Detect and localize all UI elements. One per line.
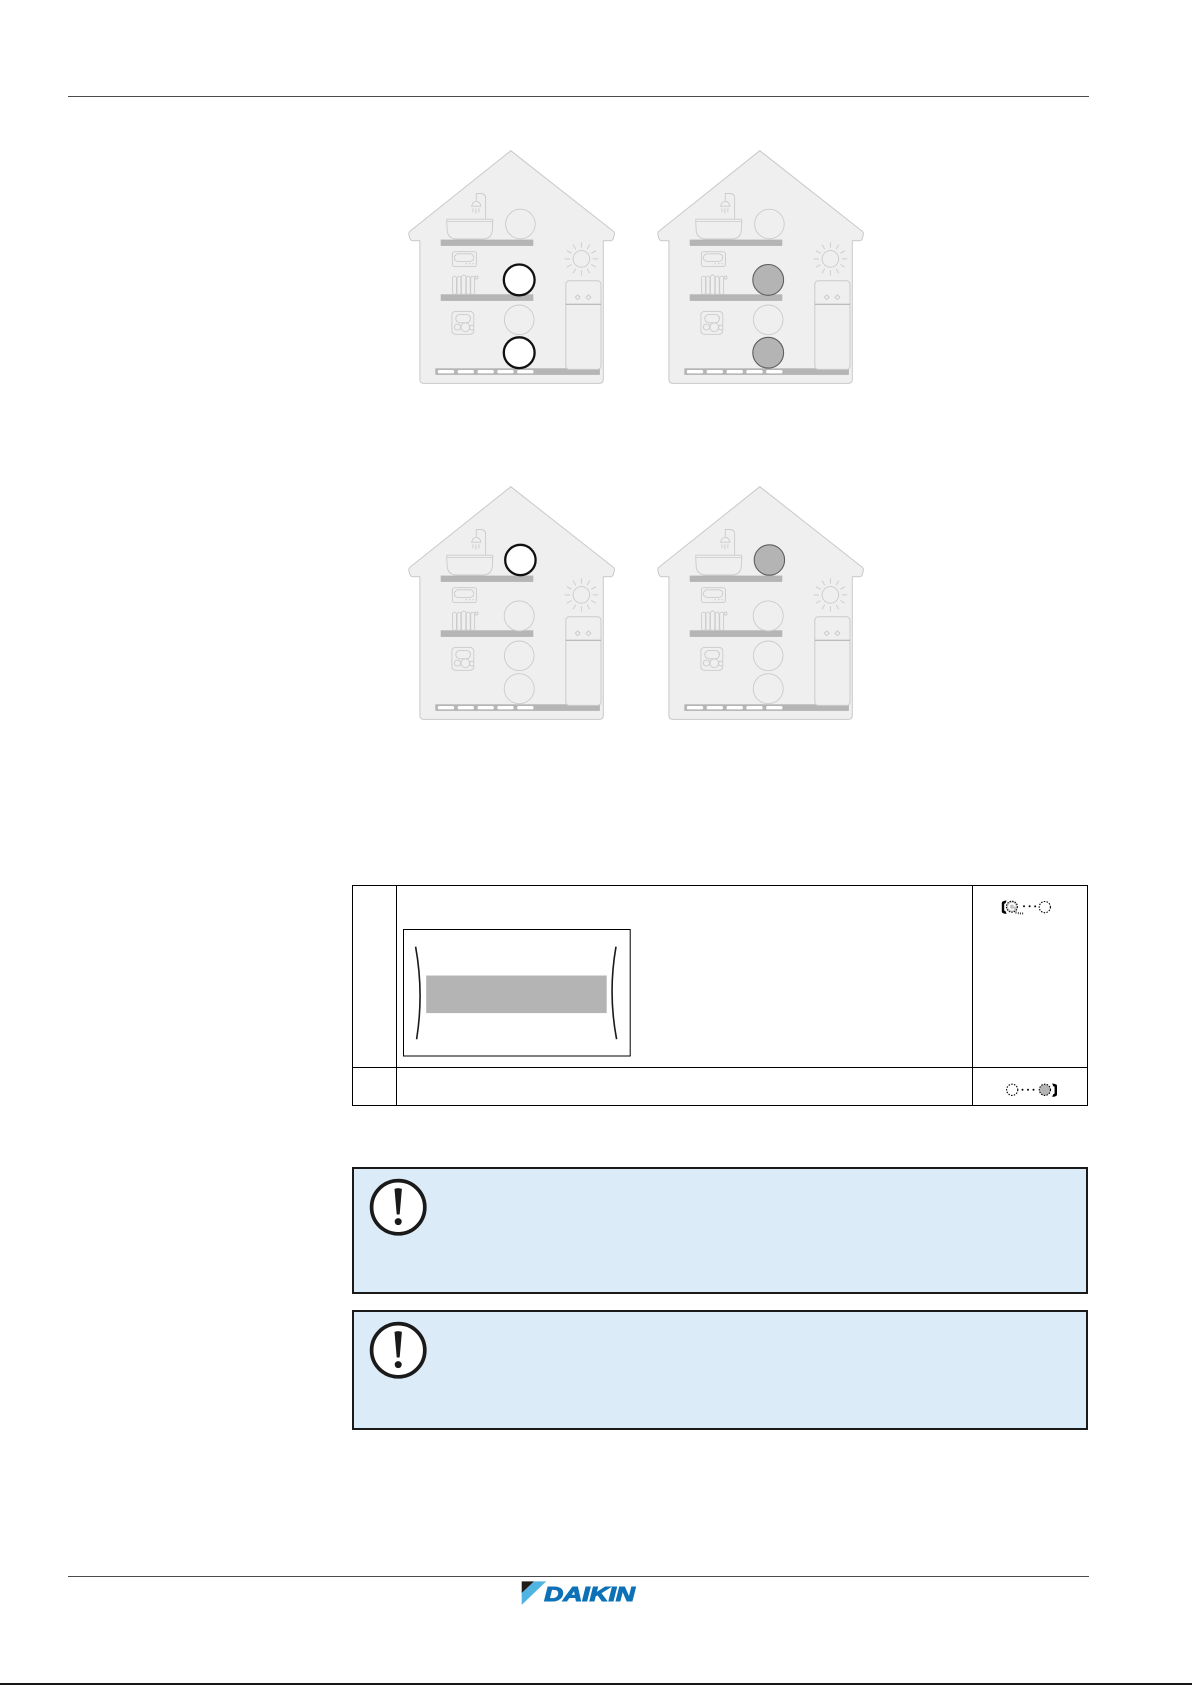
svg-text:DAIKIN: DAIKIN: [544, 1584, 635, 1606]
